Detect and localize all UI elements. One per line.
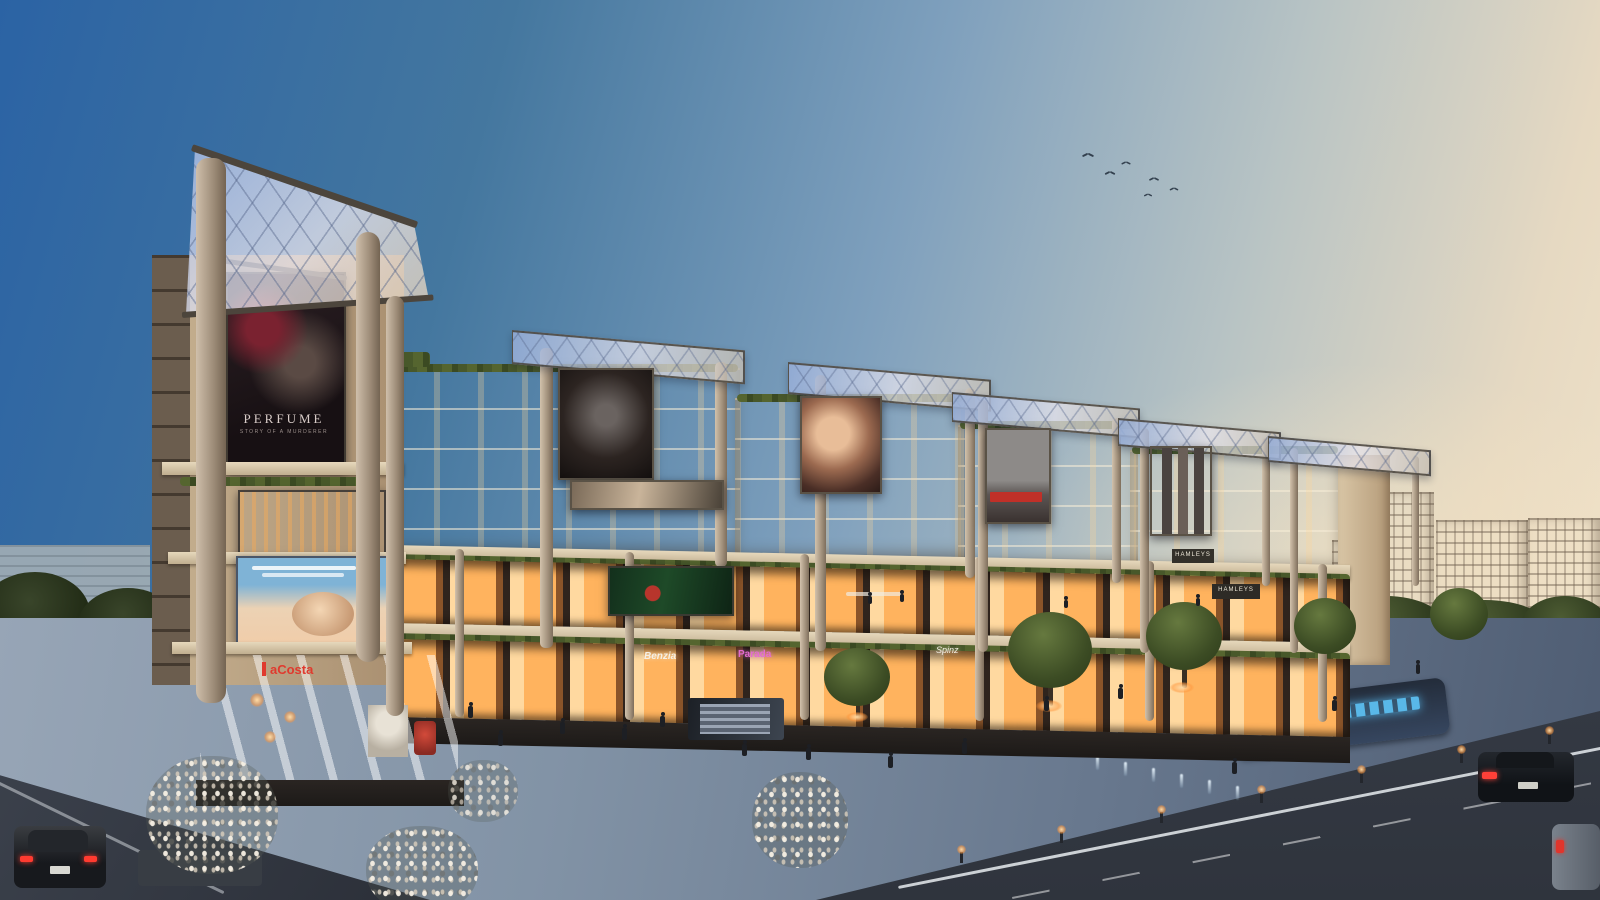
tower-column — [356, 232, 380, 662]
pedestrian — [1416, 664, 1420, 674]
tree-uplight — [1036, 700, 1062, 712]
led-screen-car-ad — [608, 566, 734, 616]
entrance-stairs — [688, 698, 784, 740]
bird-icon — [1170, 187, 1179, 192]
pedestrian — [1232, 762, 1237, 774]
taillight — [20, 856, 33, 862]
billboard-red-brand-band — [990, 492, 1042, 502]
mall-exterior-render: HAMLEYS HAMLEYS Benzia Parada Spinz PERF… — [0, 0, 1600, 900]
perfume-subtitle: STORY OF A MURDERER — [228, 430, 340, 435]
taillight — [1556, 840, 1564, 853]
display-lamp — [284, 711, 296, 723]
fountain-jet — [1236, 786, 1239, 800]
perfume-title: PERFUME — [228, 412, 340, 425]
pergola-column — [540, 348, 553, 648]
light-bollard — [1548, 733, 1551, 744]
car-roof — [1496, 752, 1554, 768]
pedestrian — [560, 722, 565, 734]
plaza-tree — [1294, 598, 1356, 654]
light-bollard — [1260, 792, 1263, 803]
hamleys-sign-upper: HAMLEYS — [1172, 549, 1214, 563]
plaza-tree — [824, 648, 890, 706]
banner-text-line — [252, 566, 356, 570]
bird-icon — [1105, 170, 1116, 175]
car-sedan-corner — [1552, 824, 1600, 890]
display-red-bag — [414, 721, 436, 755]
parada-sign: Parada — [738, 650, 771, 660]
tower-column — [196, 158, 226, 703]
acosta-sign-bar — [262, 662, 266, 676]
hamleys-sign-lower: HAMLEYS — [1212, 584, 1260, 599]
pedestrian — [1044, 700, 1049, 711]
pedestrian — [962, 742, 967, 754]
car-suv-right — [1478, 752, 1574, 802]
car-sedan-left — [14, 826, 106, 888]
pedestrian-walkway — [900, 594, 904, 602]
tower-corner-column — [386, 296, 404, 716]
flowering-tree — [366, 826, 478, 900]
billboard-fashion-men — [1150, 446, 1212, 536]
flowering-shrub — [448, 760, 518, 822]
display-lamp — [264, 731, 276, 743]
pedestrian — [1332, 700, 1337, 711]
display-lamp — [250, 693, 264, 707]
billboard-beauty-woman — [800, 396, 882, 494]
bird-icon — [1149, 176, 1159, 181]
pedestrian-walkway — [1064, 600, 1068, 608]
car-cabin — [28, 830, 88, 852]
pedestrian — [660, 716, 665, 727]
billboard-wide-screen — [570, 480, 724, 510]
taillight — [1482, 772, 1497, 779]
license-plate — [1518, 782, 1538, 789]
facade-column — [800, 554, 809, 720]
bird-icon — [1121, 161, 1131, 166]
flowering-tree — [752, 772, 848, 868]
pergola-column — [1140, 428, 1149, 653]
banner-face — [292, 592, 354, 636]
pedestrian — [742, 744, 747, 756]
pedestrian — [498, 734, 503, 746]
billboard-fragrance-man — [558, 368, 654, 480]
light-bollard — [1160, 812, 1163, 823]
license-plate — [50, 866, 70, 874]
pedestrian — [1118, 688, 1123, 699]
pedestrian — [468, 706, 473, 718]
flowering-tree — [146, 756, 278, 874]
billboard-man-portrait — [985, 428, 1051, 524]
store-sign-unreadable — [846, 592, 902, 596]
benzia-sign: Benzia — [644, 652, 676, 662]
light-bollard — [960, 852, 963, 863]
plaza-tree — [1146, 602, 1222, 670]
stair-steps — [700, 704, 770, 734]
pergola-column — [1412, 456, 1419, 586]
tree-uplight — [846, 712, 868, 722]
pedestrian — [806, 748, 811, 760]
light-bollard — [1060, 832, 1063, 843]
acosta-sign: aCosta — [270, 663, 313, 676]
pedestrian — [888, 756, 893, 768]
plaza-tree — [1008, 612, 1092, 688]
banner-text-line — [262, 573, 344, 577]
pedestrian-walkway — [1196, 598, 1200, 606]
taillight — [84, 856, 97, 862]
tree-uplight — [1170, 682, 1194, 693]
bird-icon — [1144, 193, 1152, 197]
spinz-sign: Spinz — [936, 646, 959, 655]
plaza-tree — [1430, 588, 1488, 640]
pedestrian-walkway — [868, 596, 872, 604]
pedestrian — [622, 728, 627, 740]
fountain-jet — [1180, 774, 1183, 788]
light-bollard — [1460, 752, 1463, 763]
bird-icon — [1082, 152, 1094, 158]
fountain-jet — [1208, 780, 1211, 794]
pergola-column — [715, 362, 727, 567]
light-bollard — [1360, 772, 1363, 783]
